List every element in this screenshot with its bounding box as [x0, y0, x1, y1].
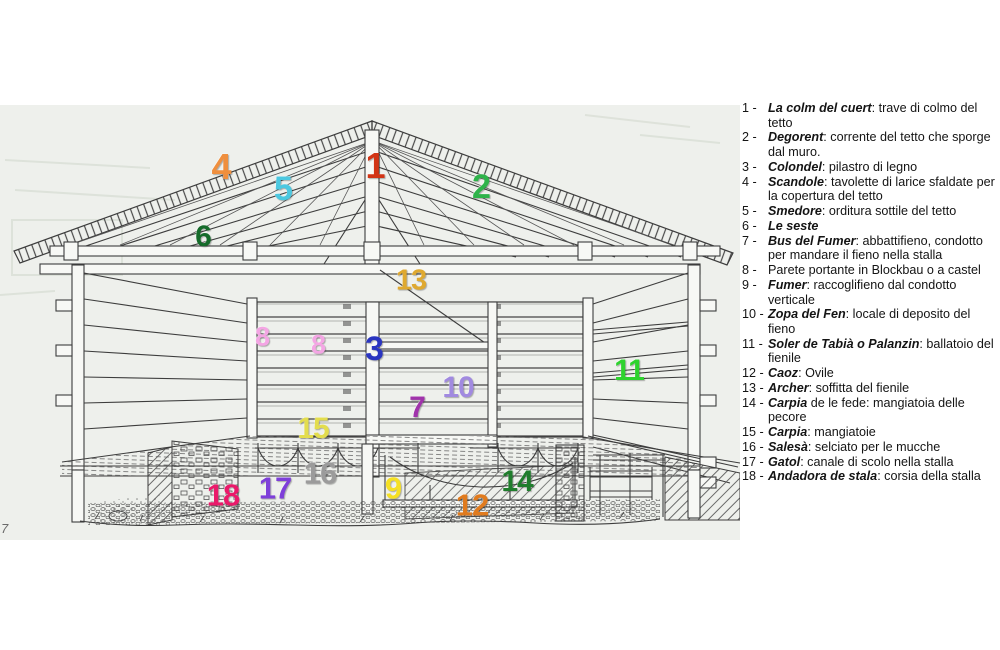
- legend-item-desc: Parete portante in Blockbau o a castel: [768, 263, 981, 277]
- barn-cross-section-drawing: [0, 105, 740, 540]
- legend-item: 16 - Salesà: selciato per le mucche: [742, 440, 1000, 455]
- legend-item-term: Degorent: [768, 130, 823, 144]
- legend-item-number: 11 -: [742, 337, 768, 352]
- legend-item-desc: : mangiatoie: [807, 425, 876, 439]
- legend-item: 7 - Bus del Fumer: abbattifieno, condott…: [742, 234, 1000, 263]
- legend-item-number: 1 -: [742, 101, 768, 116]
- legend-item-number: 6 -: [742, 219, 768, 234]
- legend-item: 11 - Soler de Tabià o Palanzin: ballatoi…: [742, 337, 1000, 366]
- legend-item-term: Scandole: [768, 175, 824, 189]
- legend-item-desc: : pilastro di legno: [822, 160, 917, 174]
- legend-item-desc: : selciato per le mucche: [808, 440, 940, 454]
- legend-item-number: 13 -: [742, 381, 768, 396]
- legend-item-desc: : soffitta del fienile: [809, 381, 910, 395]
- legend-item-term: Andadora de stala: [768, 469, 877, 483]
- legend-item: 10 - Zopa del Fen: locale di deposito de…: [742, 307, 1000, 336]
- legend-item-number: 17 -: [742, 455, 768, 470]
- legend-item-number: 14 -: [742, 396, 768, 411]
- legend-item-term: Carpia: [768, 396, 807, 410]
- legend-item-term: La colm del cuert: [768, 101, 872, 115]
- legend-item-desc: : corsia della stalla: [877, 469, 981, 483]
- legend-item-term: Colondel: [768, 160, 822, 174]
- legend-item-term: Smedore: [768, 204, 822, 218]
- legend-item-number: 16 -: [742, 440, 768, 455]
- legend-item-number: 15 -: [742, 425, 768, 440]
- legend-item: 12 - Caoz: Ovile: [742, 366, 1000, 381]
- legend-item: 18 - Andadora de stala: corsia della sta…: [742, 469, 1000, 484]
- legend-item-number: 10 -: [742, 307, 768, 322]
- legend-item-term: Salesà: [768, 440, 808, 454]
- legend-item: 1 - La colm del cuert: trave di colmo de…: [742, 101, 1000, 130]
- legend-item-desc: : canale di scolo nella stalla: [800, 455, 953, 469]
- legend-item: 14 - Carpia de le fede: mangiatoia delle…: [742, 396, 1000, 425]
- legend-item-number: 12 -: [742, 366, 768, 381]
- legend-item-number: 5 -: [742, 204, 768, 219]
- legend-item-term: Carpia: [768, 425, 807, 439]
- legend-item: 6 - Le seste: [742, 219, 1000, 234]
- legend-item-number: 2 -: [742, 130, 768, 145]
- legend-item-desc: : orditura sottile del tetto: [822, 204, 956, 218]
- legend-item-term: Le seste: [768, 219, 818, 233]
- legend-item-number: 4 -: [742, 175, 768, 190]
- legend-item-term: Fumer: [768, 278, 807, 292]
- legend-item: 3 - Colondel: pilastro di legno: [742, 160, 1000, 175]
- legend-list: 1 - La colm del cuert: trave di colmo de…: [742, 101, 1000, 484]
- legend-item: 2 - Degorent: corrente del tetto che spo…: [742, 130, 1000, 159]
- legend: 1 - La colm del cuert: trave di colmo de…: [742, 101, 1000, 484]
- legend-item-number: 18 -: [742, 469, 768, 484]
- legend-item: 8 - Parete portante in Blockbau o a cast…: [742, 263, 1000, 278]
- legend-item-term: Archer: [768, 381, 809, 395]
- legend-item: 17 - Gatol: canale di scolo nella stalla: [742, 455, 1000, 470]
- legend-item-term: Zopa del Fen: [768, 307, 846, 321]
- legend-item-number: 7 -: [742, 234, 768, 249]
- legend-item: 4 - Scandole: tavolette di larice sfalda…: [742, 175, 1000, 204]
- legend-item-desc: : Ovile: [798, 366, 834, 380]
- legend-item-term: Soler de Tabià o Palanzin: [768, 337, 919, 351]
- legend-item: 13 - Archer: soffitta del fienile: [742, 381, 1000, 396]
- legend-item-term: Gatol: [768, 455, 800, 469]
- legend-item: 5 - Smedore: orditura sottile del tetto: [742, 204, 1000, 219]
- corner-mark: 7: [1, 521, 8, 536]
- legend-item: 9 - Fumer: raccoglifieno dal condotto ve…: [742, 278, 1000, 307]
- legend-item-number: 8 -: [742, 263, 768, 278]
- legend-item-number: 9 -: [742, 278, 768, 293]
- legend-item: 15 - Carpia: mangiatoie: [742, 425, 1000, 440]
- legend-item-number: 3 -: [742, 160, 768, 175]
- legend-item-term: Bus del Fumer: [768, 234, 855, 248]
- legend-item-term: Caoz: [768, 366, 798, 380]
